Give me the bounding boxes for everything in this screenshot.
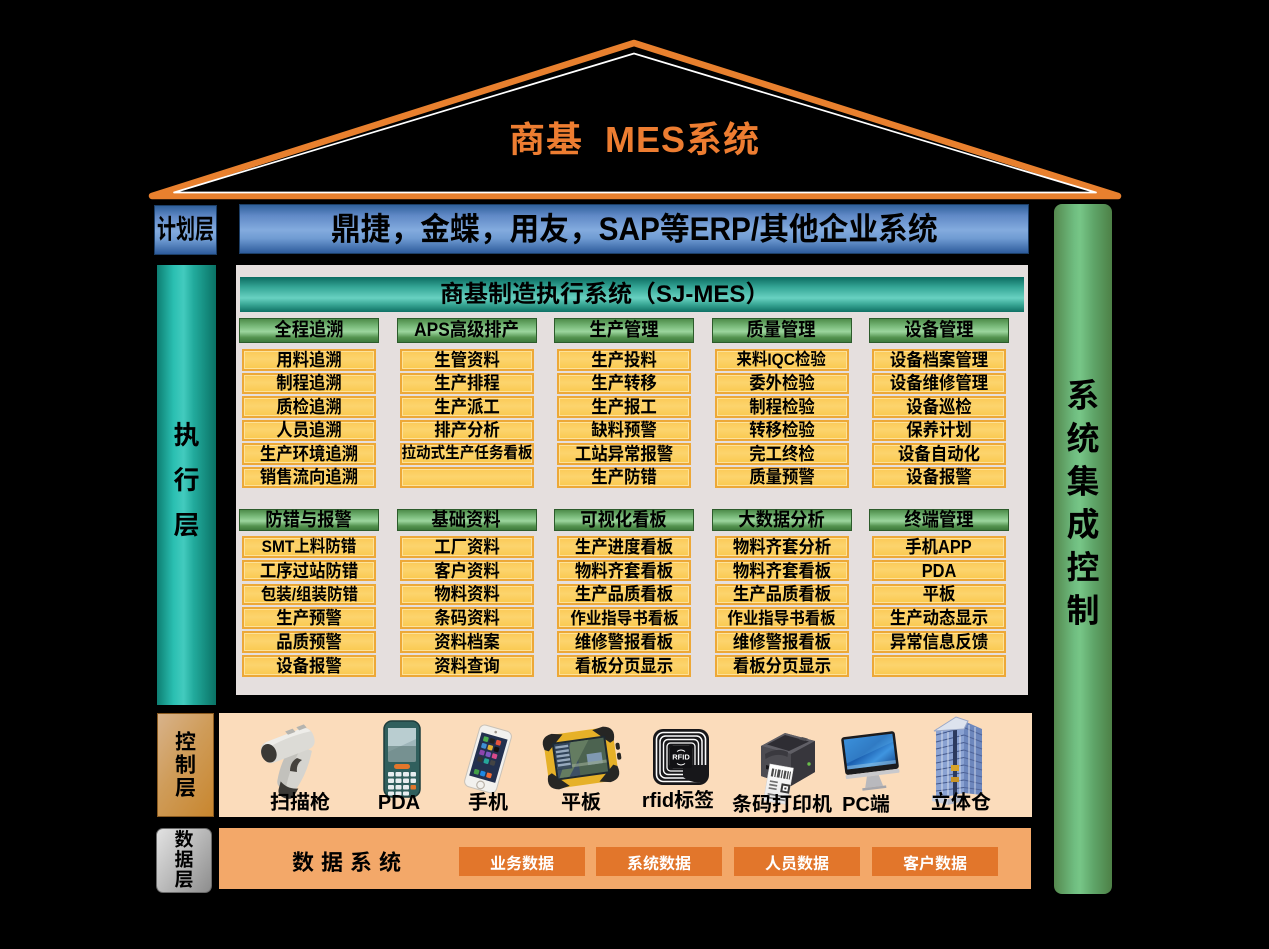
svg-text:RFID: RFID xyxy=(672,753,690,762)
